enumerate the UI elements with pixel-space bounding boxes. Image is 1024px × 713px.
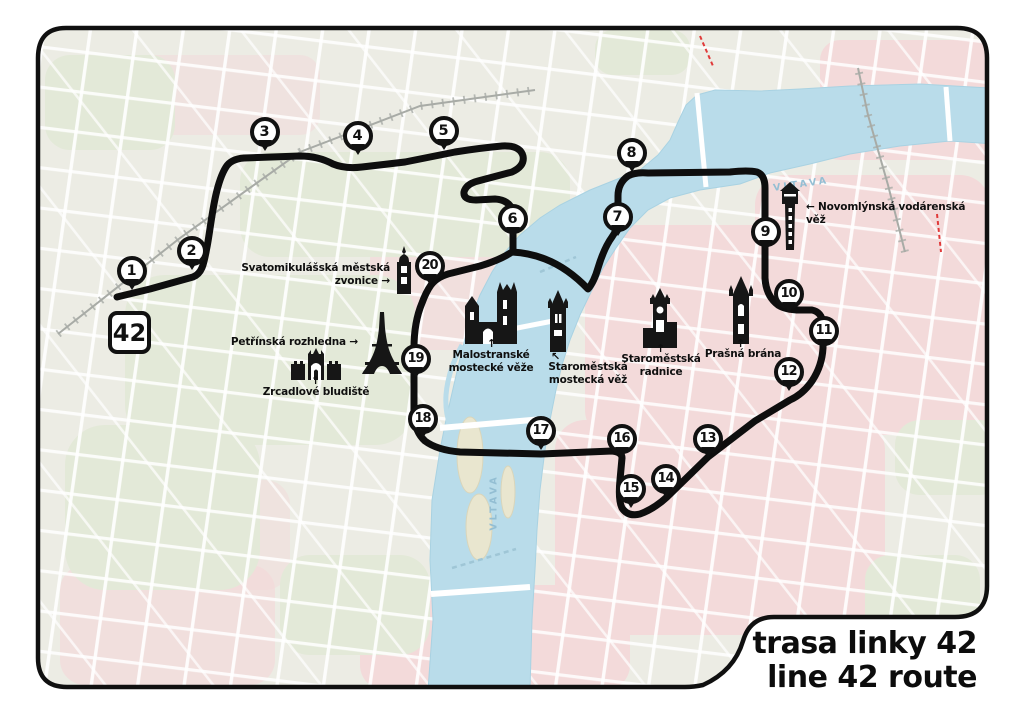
stop-number: 9 (760, 224, 770, 240)
stop-number: 20 (421, 258, 437, 273)
stop-number: 16 (613, 431, 629, 446)
stop-pin-3[interactable]: 3 (250, 117, 280, 147)
title-english: line 42 route (752, 661, 977, 695)
stop-pin-19[interactable]: 19 (401, 344, 431, 374)
stop-pin-16[interactable]: 16 (607, 424, 637, 454)
stop-pin-15[interactable]: 15 (616, 474, 646, 504)
stop-number: 8 (626, 145, 636, 161)
prasna-brana-icon (727, 276, 755, 344)
stop-number: 10 (780, 286, 796, 301)
stop-number: 12 (780, 364, 796, 379)
stop-pin-4[interactable]: 4 (343, 121, 373, 151)
river-label-vltava-bottom: VLTAVA (489, 474, 500, 530)
stop-pin-12[interactable]: 12 (774, 357, 804, 387)
stop-number: 4 (352, 128, 362, 144)
landmark-label-vodarenska: ← Novomlýnská vodárenská věž (806, 201, 981, 227)
petrin-tower-icon (362, 312, 402, 384)
stop-number: 19 (407, 351, 423, 366)
stop-pin-1[interactable]: 1 (117, 256, 147, 286)
mostecka-tower-icon (545, 290, 571, 352)
stop-number: 15 (622, 481, 638, 496)
stop-pin-5[interactable]: 5 (429, 116, 459, 146)
stop-number: 18 (414, 411, 430, 426)
poster-title: trasa linky 42 line 42 route (752, 627, 977, 695)
poster: VLTAVA VLTAVA (0, 0, 1024, 713)
title-czech: trasa linky 42 (752, 627, 977, 661)
stop-pin-14[interactable]: 14 (651, 464, 681, 494)
stop-number: 7 (612, 209, 622, 225)
stop-number: 3 (259, 124, 269, 140)
stop-number: 17 (532, 423, 548, 438)
stop-number: 13 (699, 431, 715, 446)
malostranske-towers-icon (461, 282, 519, 344)
landmark-label-bludiste: Zrcadlové bludiště (236, 386, 396, 399)
stop-pin-10[interactable]: 10 (774, 279, 804, 309)
landmark-label-petrin: Petřínská rozhledna → (178, 336, 358, 349)
zvonice-tower-icon (393, 246, 415, 294)
stop-pin-9[interactable]: 9 (751, 217, 781, 247)
stop-pin-20[interactable]: 20 (415, 251, 445, 281)
stop-pin-2[interactable]: 2 (177, 236, 207, 266)
stop-number: 5 (438, 123, 448, 139)
landmark-label-zvonice: Svatomikulášská městská zvonice → (210, 262, 390, 288)
landmark-label-prasna: Prašná brána (663, 348, 823, 361)
line-42-badge: 42 (108, 311, 151, 354)
stop-number: 11 (815, 323, 831, 338)
stop-pin-6[interactable]: 6 (498, 204, 528, 234)
stop-number: 14 (657, 471, 673, 486)
stop-number: 6 (507, 211, 517, 227)
vodarenska-tower-icon (777, 182, 803, 250)
stop-pin-13[interactable]: 13 (693, 424, 723, 454)
stop-pin-11[interactable]: 11 (809, 316, 839, 346)
stop-pin-8[interactable]: 8 (617, 138, 647, 168)
stop-pin-18[interactable]: 18 (408, 404, 438, 434)
stop-pin-7[interactable]: 7 (603, 202, 633, 232)
radnice-tower-icon (643, 288, 677, 348)
stop-pin-17[interactable]: 17 (526, 416, 556, 446)
stop-number: 1 (126, 263, 136, 279)
stop-number: 2 (186, 243, 196, 259)
